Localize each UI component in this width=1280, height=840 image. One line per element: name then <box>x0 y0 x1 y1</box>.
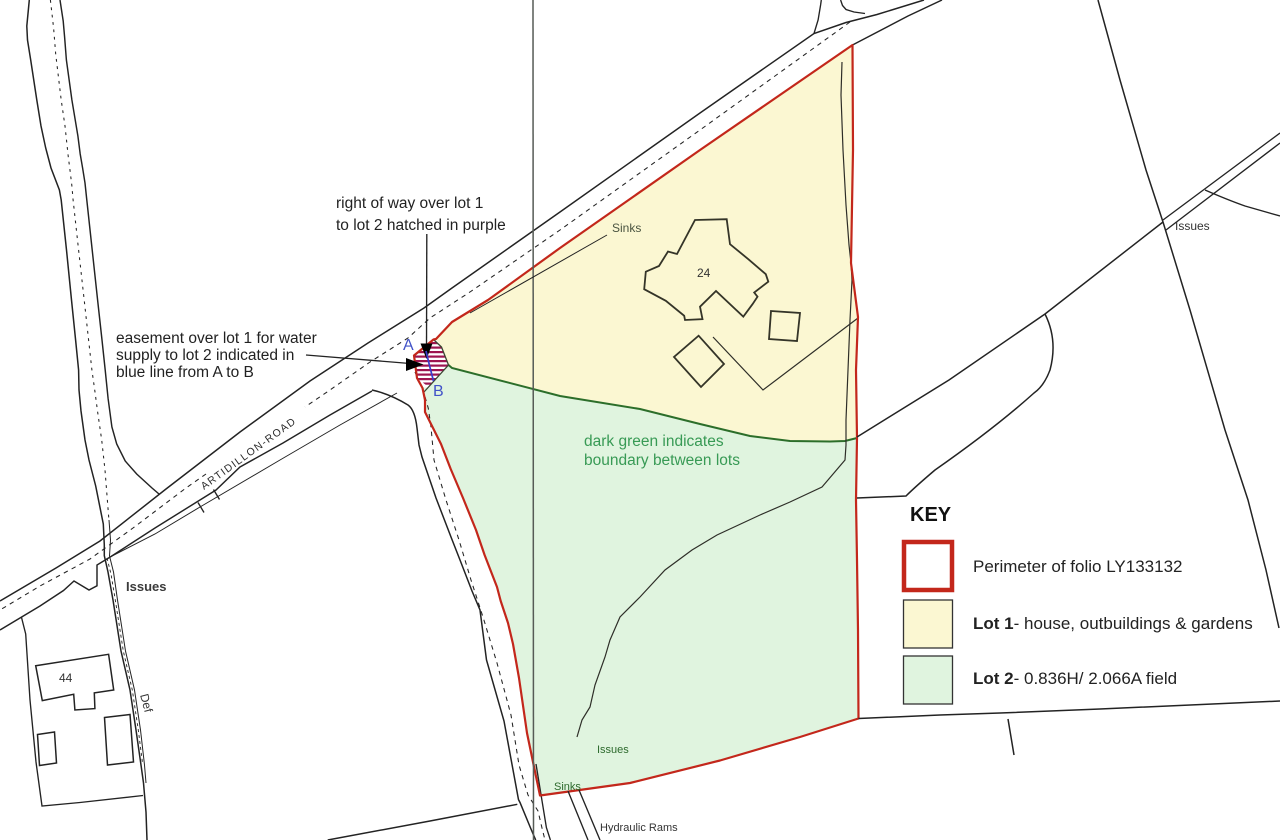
svg-text:24: 24 <box>697 266 711 280</box>
svg-text:Lot 2- 0.836H/ 2.066A field: Lot 2- 0.836H/ 2.066A field <box>973 669 1177 688</box>
svg-text:Lot 1- house, outbuildings & g: Lot 1- house, outbuildings & gardens <box>973 614 1253 633</box>
svg-text:Sinks: Sinks <box>554 781 581 793</box>
svg-text:easement over lot 1 for water: easement over lot 1 for water <box>116 330 317 347</box>
svg-text:A: A <box>403 337 414 354</box>
svg-text:Issues: Issues <box>126 579 166 594</box>
svg-text:Sinks: Sinks <box>612 221 641 235</box>
svg-text:Issues: Issues <box>597 744 629 756</box>
svg-text:dark green indicates: dark green indicates <box>584 433 724 450</box>
svg-text:to lot 2 hatched in purple: to lot 2 hatched in purple <box>336 217 506 234</box>
svg-text:KEY: KEY <box>910 504 952 526</box>
svg-text:supply to lot 2 indicated in: supply to lot 2 indicated in <box>116 347 294 364</box>
svg-text:Perimeter of folio LY133132: Perimeter of folio LY133132 <box>973 557 1182 576</box>
svg-text:blue line from A to B: blue line from A to B <box>116 364 254 381</box>
svg-text:44: 44 <box>59 671 73 685</box>
svg-text:boundary between lots: boundary between lots <box>584 452 740 469</box>
svg-text:Hydraulic Rams: Hydraulic Rams <box>600 822 678 834</box>
svg-text:Issues: Issues <box>1175 219 1210 233</box>
svg-text:right of way over lot 1: right of way over lot 1 <box>336 195 483 212</box>
svg-text:B: B <box>433 383 444 400</box>
